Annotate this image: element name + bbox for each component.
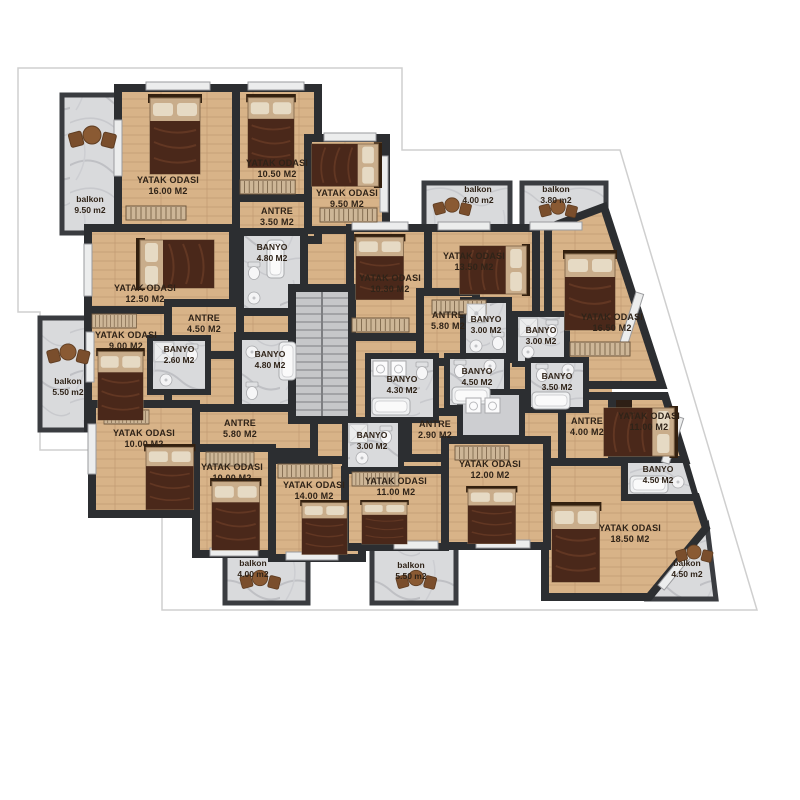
bed-icon <box>466 486 517 544</box>
room-label: YATAK ODASI <box>113 428 175 438</box>
room-label: balkon <box>397 560 424 570</box>
room-area: 4.00 m2 <box>462 195 493 205</box>
room-label: BANYO <box>471 314 502 324</box>
room-area: 5.50 m2 <box>52 387 83 397</box>
room-area: 5.80 M2 <box>223 429 257 439</box>
room-label: balkon <box>542 184 569 194</box>
wardrobe <box>570 342 630 356</box>
room-area: 16.00 M2 <box>148 186 187 196</box>
room-label: YATAK ODASI <box>316 188 378 198</box>
room-area: 4.50 m2 <box>671 569 702 579</box>
room-area: 2.60 M2 <box>164 355 195 365</box>
sink-icon <box>672 476 684 488</box>
room-area: 13.50 M2 <box>454 262 493 272</box>
room-label: balkon <box>76 194 103 204</box>
room-label: BANYO <box>387 374 418 384</box>
room-label: BANYO <box>542 371 573 381</box>
room-area: 3.00 M2 <box>526 336 557 346</box>
room-label: balkon <box>673 558 700 568</box>
bathtub-icon <box>372 398 410 415</box>
wardrobe <box>352 318 409 332</box>
room-label: BANYO <box>164 344 195 354</box>
room-area: 10.50 M2 <box>257 169 296 179</box>
room-area: 4.00 M2 <box>570 427 604 437</box>
bathtub-icon <box>532 392 570 409</box>
room-area: 12.00 M2 <box>470 470 509 480</box>
sink-icon <box>160 374 172 386</box>
room-label: ANTRE <box>188 313 220 323</box>
room-label: YATAK ODASI <box>137 175 199 185</box>
washer-icon <box>485 398 500 413</box>
room-area: 3.50 M2 <box>542 382 573 392</box>
room-label: YATAK ODASI <box>581 312 643 322</box>
room-label: YATAK ODASI <box>599 523 661 533</box>
bed-icon <box>246 94 296 168</box>
room-area: 2.90 M2 <box>418 430 452 440</box>
bed-icon <box>360 500 409 544</box>
room-area: 16.50 M2 <box>592 323 631 333</box>
bed-icon <box>144 444 195 510</box>
room-label: YATAK ODASI <box>359 273 421 283</box>
room-area: 4.50 M2 <box>643 475 674 485</box>
room-label: BANYO <box>255 349 286 359</box>
room-area: 18.50 M2 <box>610 534 649 544</box>
room-label: ANTRE <box>432 310 464 320</box>
toilet-icon <box>416 362 428 380</box>
floor-plan: balkon 9.50 m2 YATAK ODASI 16.00 M2 YATA… <box>0 0 800 800</box>
room-label: YATAK ODASI <box>443 251 505 261</box>
room-area: 10.00 M2 <box>124 439 163 449</box>
room-label: balkon <box>464 184 491 194</box>
room-area: 4.80 M2 <box>255 360 286 370</box>
room-area: 10.30 M2 <box>370 284 409 294</box>
room-label: YATAK ODASI <box>618 411 680 421</box>
room-area: 5.80 M2 <box>431 321 465 331</box>
toilet-icon <box>246 382 258 400</box>
bed-icon <box>550 502 601 582</box>
bed-icon <box>312 142 382 188</box>
bed-icon <box>148 94 202 174</box>
room-area: 10.00 M2 <box>212 473 251 483</box>
room-area: 4.50 M2 <box>462 377 493 387</box>
wardrobe <box>92 314 136 328</box>
room-area: 11.00 M2 <box>377 487 416 497</box>
bed-icon <box>300 500 349 554</box>
room-label: ANTRE <box>419 419 451 429</box>
room-area: 3.80 m2 <box>540 195 571 205</box>
room-area: 12.50 M2 <box>125 294 164 304</box>
room-area: 9.50 m2 <box>74 205 105 215</box>
sink-icon <box>522 346 534 358</box>
room-label: balkon <box>239 558 266 568</box>
room-area: 3.50 M2 <box>260 217 294 227</box>
room-area: 11.00 M2 <box>630 422 669 432</box>
room-area: 3.00 M2 <box>357 441 388 451</box>
room-area: 14.00 M2 <box>294 491 333 501</box>
room-label: ANTRE <box>224 418 256 428</box>
room-label: YATAK ODASI <box>95 330 157 340</box>
floor-plan-page: balkon 9.50 m2 YATAK ODASI 16.00 M2 YATA… <box>0 0 800 800</box>
washer-icon <box>466 398 481 413</box>
bed-icon <box>210 478 261 550</box>
room-area: 3.00 M2 <box>471 325 502 335</box>
room-label: ANTRE <box>571 416 603 426</box>
room-label: YATAK ODASI <box>201 462 263 472</box>
room-label: YATAK ODASI <box>459 459 521 469</box>
room-label: YATAK ODASI <box>246 158 308 168</box>
room-label: YATAK ODASI <box>365 476 427 486</box>
room-area: 4.80 M2 <box>257 253 288 263</box>
room-label: balkon <box>54 376 81 386</box>
room-label: YATAK ODASI <box>283 480 345 490</box>
room-area: 9.00 M2 <box>109 341 143 351</box>
room-label: BANYO <box>462 366 493 376</box>
wardrobe <box>455 446 509 460</box>
sink-icon <box>356 452 368 464</box>
room-area: 4.50 M2 <box>187 324 221 334</box>
wardrobe <box>126 206 186 220</box>
room-area: 9.50 M2 <box>330 199 364 209</box>
wardrobe <box>320 208 377 222</box>
bed-icon <box>96 348 145 420</box>
toilet-icon <box>248 262 260 280</box>
sink-icon <box>470 340 482 352</box>
sink-icon <box>248 292 260 304</box>
room-area: 5.50 m2 <box>395 571 426 581</box>
wardrobe <box>240 180 295 194</box>
room-label: BANYO <box>526 325 557 335</box>
staircase <box>292 288 352 420</box>
room-area: 4.00 m2 <box>237 569 268 579</box>
room-label: BANYO <box>257 242 288 252</box>
wardrobe <box>278 464 332 478</box>
room-label: YATAK ODASI <box>114 283 176 293</box>
room-area: 4.30 M2 <box>387 385 418 395</box>
room-label: BANYO <box>643 464 674 474</box>
room-label: ANTRE <box>261 206 293 216</box>
room-label: BANYO <box>357 430 388 440</box>
